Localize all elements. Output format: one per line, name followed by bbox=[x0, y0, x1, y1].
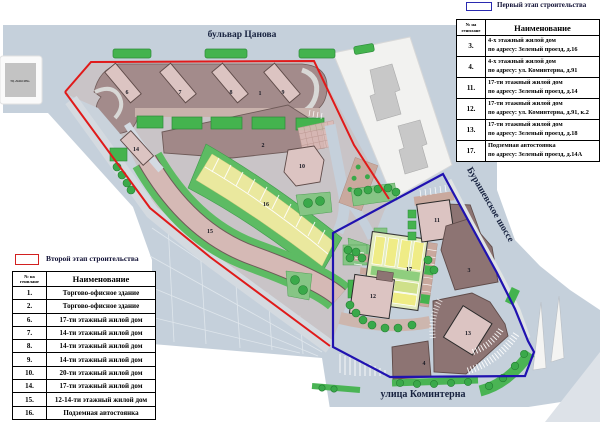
svg-text:бульвар Цанова: бульвар Цанова bbox=[208, 29, 277, 40]
svg-text:улица Коминтерна: улица Коминтерна bbox=[381, 389, 466, 400]
svg-text:13: 13 bbox=[465, 331, 471, 337]
svg-text:17: 17 bbox=[406, 267, 412, 273]
svg-text:10: 10 bbox=[299, 164, 305, 170]
svg-text:6: 6 bbox=[126, 90, 129, 96]
svg-text:1: 1 bbox=[259, 91, 262, 97]
svg-text:7: 7 bbox=[179, 90, 182, 96]
svg-text:16: 16 bbox=[263, 202, 269, 208]
svg-text:11: 11 bbox=[434, 218, 440, 224]
svg-text:9: 9 bbox=[282, 90, 285, 96]
svg-text:14: 14 bbox=[133, 147, 139, 153]
svg-text:15: 15 bbox=[207, 229, 213, 235]
svg-text:2: 2 bbox=[262, 143, 265, 149]
svg-text:4: 4 bbox=[423, 361, 426, 367]
svg-text:ТЦ «МАКСИМ»: ТЦ «МАКСИМ» bbox=[10, 80, 30, 83]
svg-text:3: 3 bbox=[468, 268, 471, 274]
svg-text:12: 12 bbox=[370, 294, 376, 300]
svg-text:8: 8 bbox=[230, 90, 233, 96]
